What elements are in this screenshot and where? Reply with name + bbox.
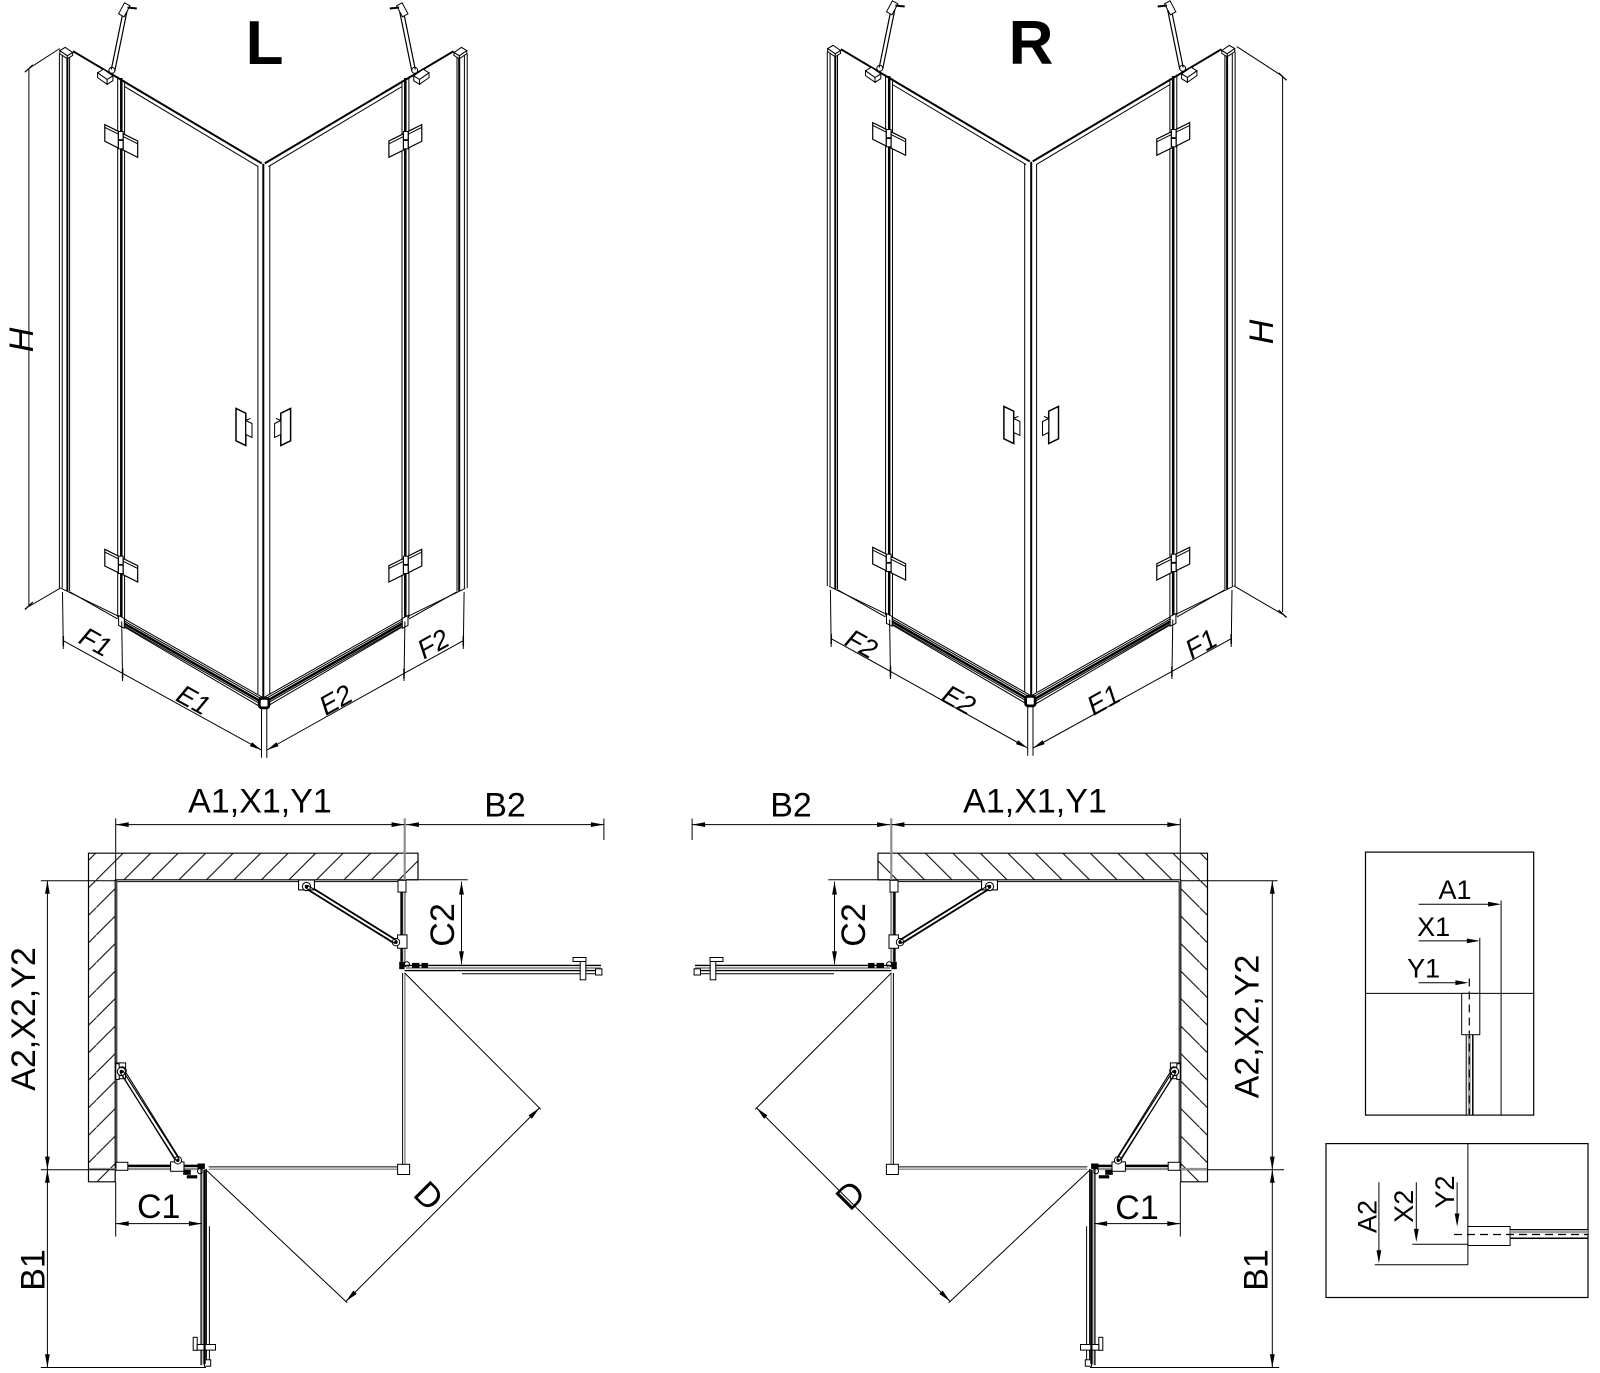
svg-text:A1: A1 <box>1438 875 1471 905</box>
svg-text:L: L <box>246 9 284 78</box>
svg-text:A1,X1,Y1: A1,X1,Y1 <box>963 783 1107 821</box>
svg-text:Y2: Y2 <box>1430 1175 1460 1208</box>
svg-text:A2,X2,Y2: A2,X2,Y2 <box>1229 955 1267 1099</box>
svg-text:C1: C1 <box>1115 1189 1158 1227</box>
svg-text:B1: B1 <box>1238 1249 1276 1291</box>
svg-text:Y1: Y1 <box>1407 954 1440 984</box>
svg-text:C2: C2 <box>424 903 462 946</box>
svg-text:B2: B2 <box>770 787 812 825</box>
svg-text:H: H <box>3 327 41 352</box>
svg-text:C2: C2 <box>835 903 873 946</box>
svg-text:X1: X1 <box>1417 912 1450 942</box>
svg-text:A2,X2,Y2: A2,X2,Y2 <box>5 947 43 1091</box>
svg-text:A1,X1,Y1: A1,X1,Y1 <box>188 783 332 821</box>
svg-text:H: H <box>1243 319 1281 344</box>
svg-text:B1: B1 <box>15 1249 53 1291</box>
svg-text:B2: B2 <box>484 787 526 825</box>
svg-text:X2: X2 <box>1389 1190 1419 1223</box>
svg-text:R: R <box>1009 9 1054 78</box>
svg-text:A2: A2 <box>1352 1200 1382 1233</box>
svg-text:C1: C1 <box>137 1188 180 1226</box>
